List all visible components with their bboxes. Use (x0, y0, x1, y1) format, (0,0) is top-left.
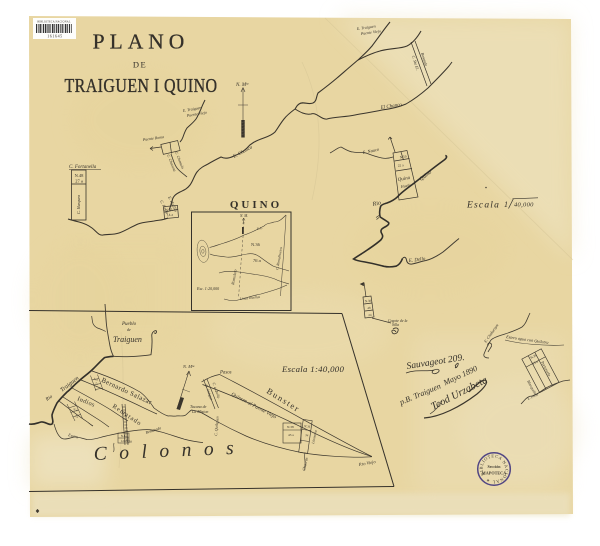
svg-text:Traiguen: Traiguen (113, 335, 142, 344)
svg-text:76 a: 76 a (253, 258, 262, 263)
svg-text:Silla: Silla (392, 323, 399, 327)
svg-text:Escala: Escala (466, 201, 500, 211)
svg-text:N.38: N.38 (365, 299, 372, 303)
svg-text:de: de (127, 327, 131, 332)
svg-text:43 a: 43 a (288, 433, 294, 437)
svg-text:Pasos: Pasos (219, 371, 232, 376)
svg-text:TRAIGUEN I QUINO: TRAIGUEN I QUINO (64, 74, 217, 96)
svg-text:N.36: N.36 (251, 242, 261, 247)
svg-text:N.38: N.38 (287, 425, 294, 429)
svg-text:1: 1 (504, 200, 508, 209)
svg-text:27 a: 27 a (75, 179, 83, 184)
svg-text:QUINO: QUINO (230, 199, 282, 211)
svg-text:La Mision: La Mision (191, 409, 208, 414)
svg-text:Escala 1:40,000: Escala 1:40,000 (281, 364, 344, 374)
svg-text:DE: DE (133, 60, 147, 70)
svg-text:40,000: 40,000 (514, 202, 534, 209)
svg-text:Sección: Sección (488, 464, 502, 469)
svg-text:MAPOTECA: MAPOTECA (482, 471, 506, 476)
svg-text:BIBLIOTECA NACIONAL: BIBLIOTECA NACIONAL (37, 21, 70, 24)
svg-text:C. Huequen: C. Huequen (76, 195, 81, 214)
svg-text:161645: 161645 (47, 33, 63, 38)
svg-text:N. M.: N. M. (239, 214, 248, 218)
svg-text:N.48: N.48 (75, 173, 85, 178)
svg-text:N.44: N.44 (121, 435, 127, 438)
svg-text:PLANO: PLANO (93, 30, 190, 54)
